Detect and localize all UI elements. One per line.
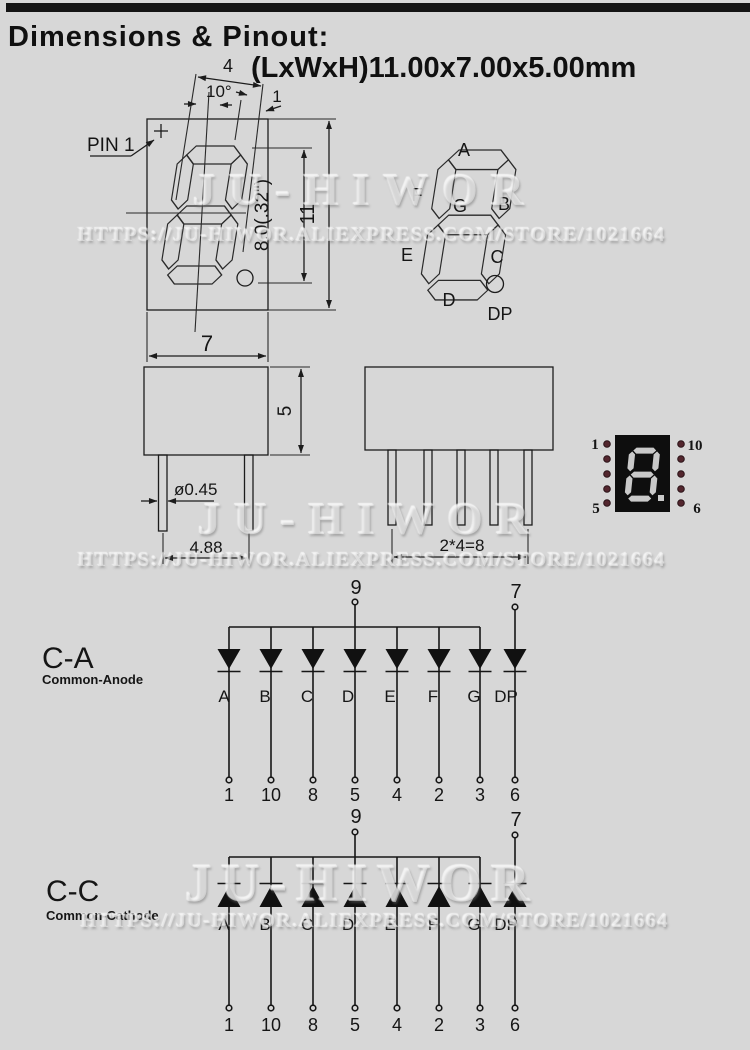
segment-label-b: B <box>498 194 510 214</box>
digit-segment-c <box>215 215 240 269</box>
technical-drawing: PIN 1 4 10° 1 <box>0 0 750 1050</box>
ca-pin-4: 4 <box>392 785 402 805</box>
cc-pin-1: 1 <box>224 1015 234 1035</box>
cc-pin-4: 4 <box>392 1015 402 1035</box>
front-view: PIN 1 4 10° 1 <box>87 56 336 362</box>
ca-dp-pin-label: 7 <box>510 581 521 603</box>
cc-seg-a: A <box>218 915 230 934</box>
dim-width-label: 7 <box>201 331 213 356</box>
side2-body <box>365 367 553 450</box>
ca-title: C-A <box>42 642 94 675</box>
cc-columns: 7 <box>218 809 527 1011</box>
segment-label-c: C <box>491 247 504 267</box>
display-module: 1 10 5 6 <box>591 435 702 517</box>
slant-centerline <box>195 92 209 332</box>
display-pin-label-1: 1 <box>591 437 599 453</box>
common-cathode-circuit: C-C Common-Cathode 9 <box>46 806 527 1035</box>
cc-pin-3: 3 <box>475 1015 485 1035</box>
side-pin-right <box>245 455 254 531</box>
digit-segment-d <box>426 280 489 300</box>
segment-label-e: E <box>401 245 413 265</box>
cc-pin-6: 6 <box>510 1015 520 1035</box>
side-view-side: 2*4=8 <box>365 367 553 564</box>
ca-seg-g: G <box>467 687 480 706</box>
ca-columns: 7 <box>218 581 527 783</box>
ca-column-dp: 7 <box>504 581 527 783</box>
ca-seg-b: B <box>259 687 270 706</box>
segment-label-d: D <box>443 290 456 310</box>
slant-line-inner <box>235 100 241 140</box>
digit-segment-d <box>166 266 223 284</box>
cc-seg-e: E <box>384 915 395 934</box>
cc-column-dp: 7 <box>504 809 527 1011</box>
datasheet-page: Dimensions & Pinout: (LxWxH)11.00x7.00x5… <box>0 0 750 1050</box>
display-pin-label-5: 5 <box>592 501 600 517</box>
common-anode-circuit: C-A Common-Anode 9 <box>42 577 527 805</box>
dim-digit-height-label: 8.0(.32") <box>252 179 273 251</box>
slant-line-left <box>176 74 196 200</box>
ca-subtitle: Common-Anode <box>42 672 143 687</box>
digit-segment-e <box>420 225 447 284</box>
ca-seg-e: E <box>384 687 395 706</box>
digit-segment-g <box>176 206 233 224</box>
side2-pin-3 <box>457 450 465 525</box>
display-dp-dot <box>658 495 664 501</box>
dim-pin-diameter-label: ø0.45 <box>174 480 217 499</box>
cc-seg-c: C <box>301 915 313 934</box>
digit-segment-e <box>161 215 186 269</box>
ca-pin-6: 6 <box>510 785 520 805</box>
ca-seg-a: A <box>218 687 230 706</box>
side2-pin-2 <box>424 450 432 525</box>
dim-pin-span-label: 2*4=8 <box>440 536 485 555</box>
segment-map-digit <box>417 150 519 300</box>
ca-pin-3: 3 <box>475 785 485 805</box>
ca-seg-d: D <box>342 687 354 706</box>
segment-map: A F G B E C D DP <box>401 140 519 324</box>
cc-dp-pin-label: 7 <box>510 809 521 831</box>
ca-common-pin-label: 9 <box>350 577 361 599</box>
side2-pin-1 <box>388 450 396 525</box>
package-outline <box>147 119 268 310</box>
cc-seg-d: D <box>342 915 354 934</box>
cc-seg-dp: DP <box>494 915 518 934</box>
display-pin-label-6: 6 <box>693 501 701 517</box>
dim-4-label: 4 <box>223 56 233 76</box>
pin1-plus-mark <box>154 124 168 138</box>
ca-seg-f: F <box>428 687 438 706</box>
dim-body-height-label: 5 <box>275 406 296 417</box>
display-pin-label-10: 10 <box>688 438 703 454</box>
ca-pin-10: 10 <box>261 785 281 805</box>
digit-segment-g <box>437 215 500 235</box>
ca-pin-2: 2 <box>434 785 444 805</box>
ca-seg-dp: DP <box>494 687 518 706</box>
cc-common-terminal <box>352 829 358 835</box>
dim-1-label: 1 <box>272 87 281 106</box>
side-view-front: 5 ø0.45 4.88 <box>141 367 310 564</box>
side-body <box>144 367 268 455</box>
cc-pin-10: 10 <box>261 1015 281 1035</box>
dim-angle-label: 10° <box>206 82 232 101</box>
side2-pin-4 <box>490 450 498 525</box>
ca-pin-1: 1 <box>224 785 234 805</box>
dim-total-height-label: 11 <box>297 204 319 225</box>
angle-arrow <box>236 92 247 95</box>
segment-label-dp: DP <box>487 304 512 324</box>
side2-pin-5 <box>524 450 532 525</box>
digit-segment-b <box>224 155 249 209</box>
cc-pin-5: 5 <box>350 1015 360 1035</box>
cc-title: C-C <box>46 875 99 908</box>
cc-seg-b: B <box>259 915 270 934</box>
ca-pin-8: 8 <box>308 785 318 805</box>
cc-seg-g: G <box>467 915 480 934</box>
front-digit-dp-circle <box>237 270 253 286</box>
side-pin-left <box>159 455 168 531</box>
segment-label-a: A <box>458 140 470 160</box>
cc-pin-2: 2 <box>434 1015 444 1035</box>
ca-pin-5: 5 <box>350 785 360 805</box>
cc-subtitle: Common-Cathode <box>46 908 159 923</box>
dim-pin-pitch-label: 4.88 <box>189 538 222 557</box>
cc-common-pin-label: 9 <box>350 806 361 828</box>
cc-pin-8: 8 <box>308 1015 318 1035</box>
ca-common-terminal <box>352 599 358 605</box>
pin1-label: PIN 1 <box>87 135 135 156</box>
segment-label-f: F <box>412 185 423 205</box>
ca-seg-c: C <box>301 687 313 706</box>
segment-label-g: G <box>453 196 467 216</box>
cc-seg-f: F <box>428 915 438 934</box>
dim-1-arrow <box>266 106 281 111</box>
